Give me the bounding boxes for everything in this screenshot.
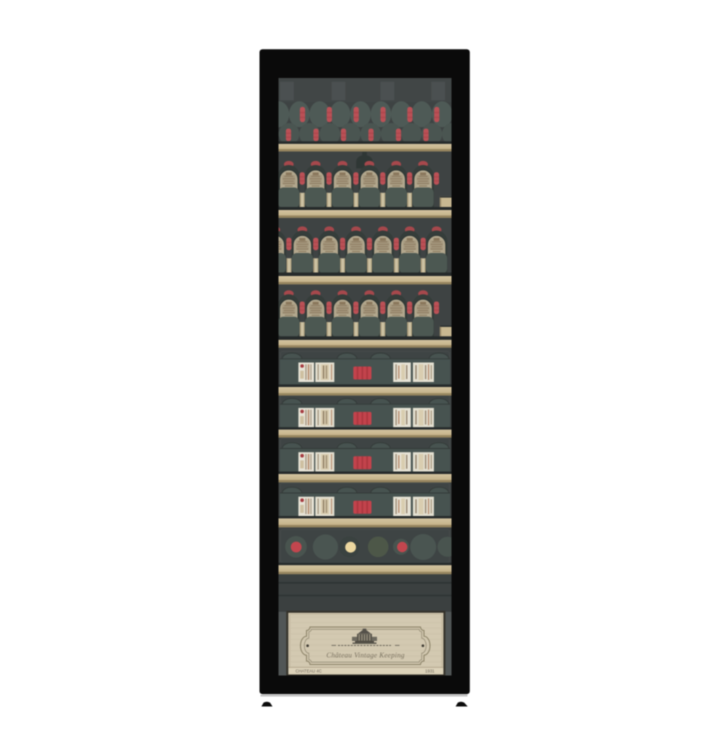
svg-text:Château Vintage Keeping: Château Vintage Keeping [326, 652, 405, 660]
svg-text:CHATEAU 4C: CHATEAU 4C [296, 668, 322, 673]
svg-text:1931: 1931 [425, 668, 435, 673]
